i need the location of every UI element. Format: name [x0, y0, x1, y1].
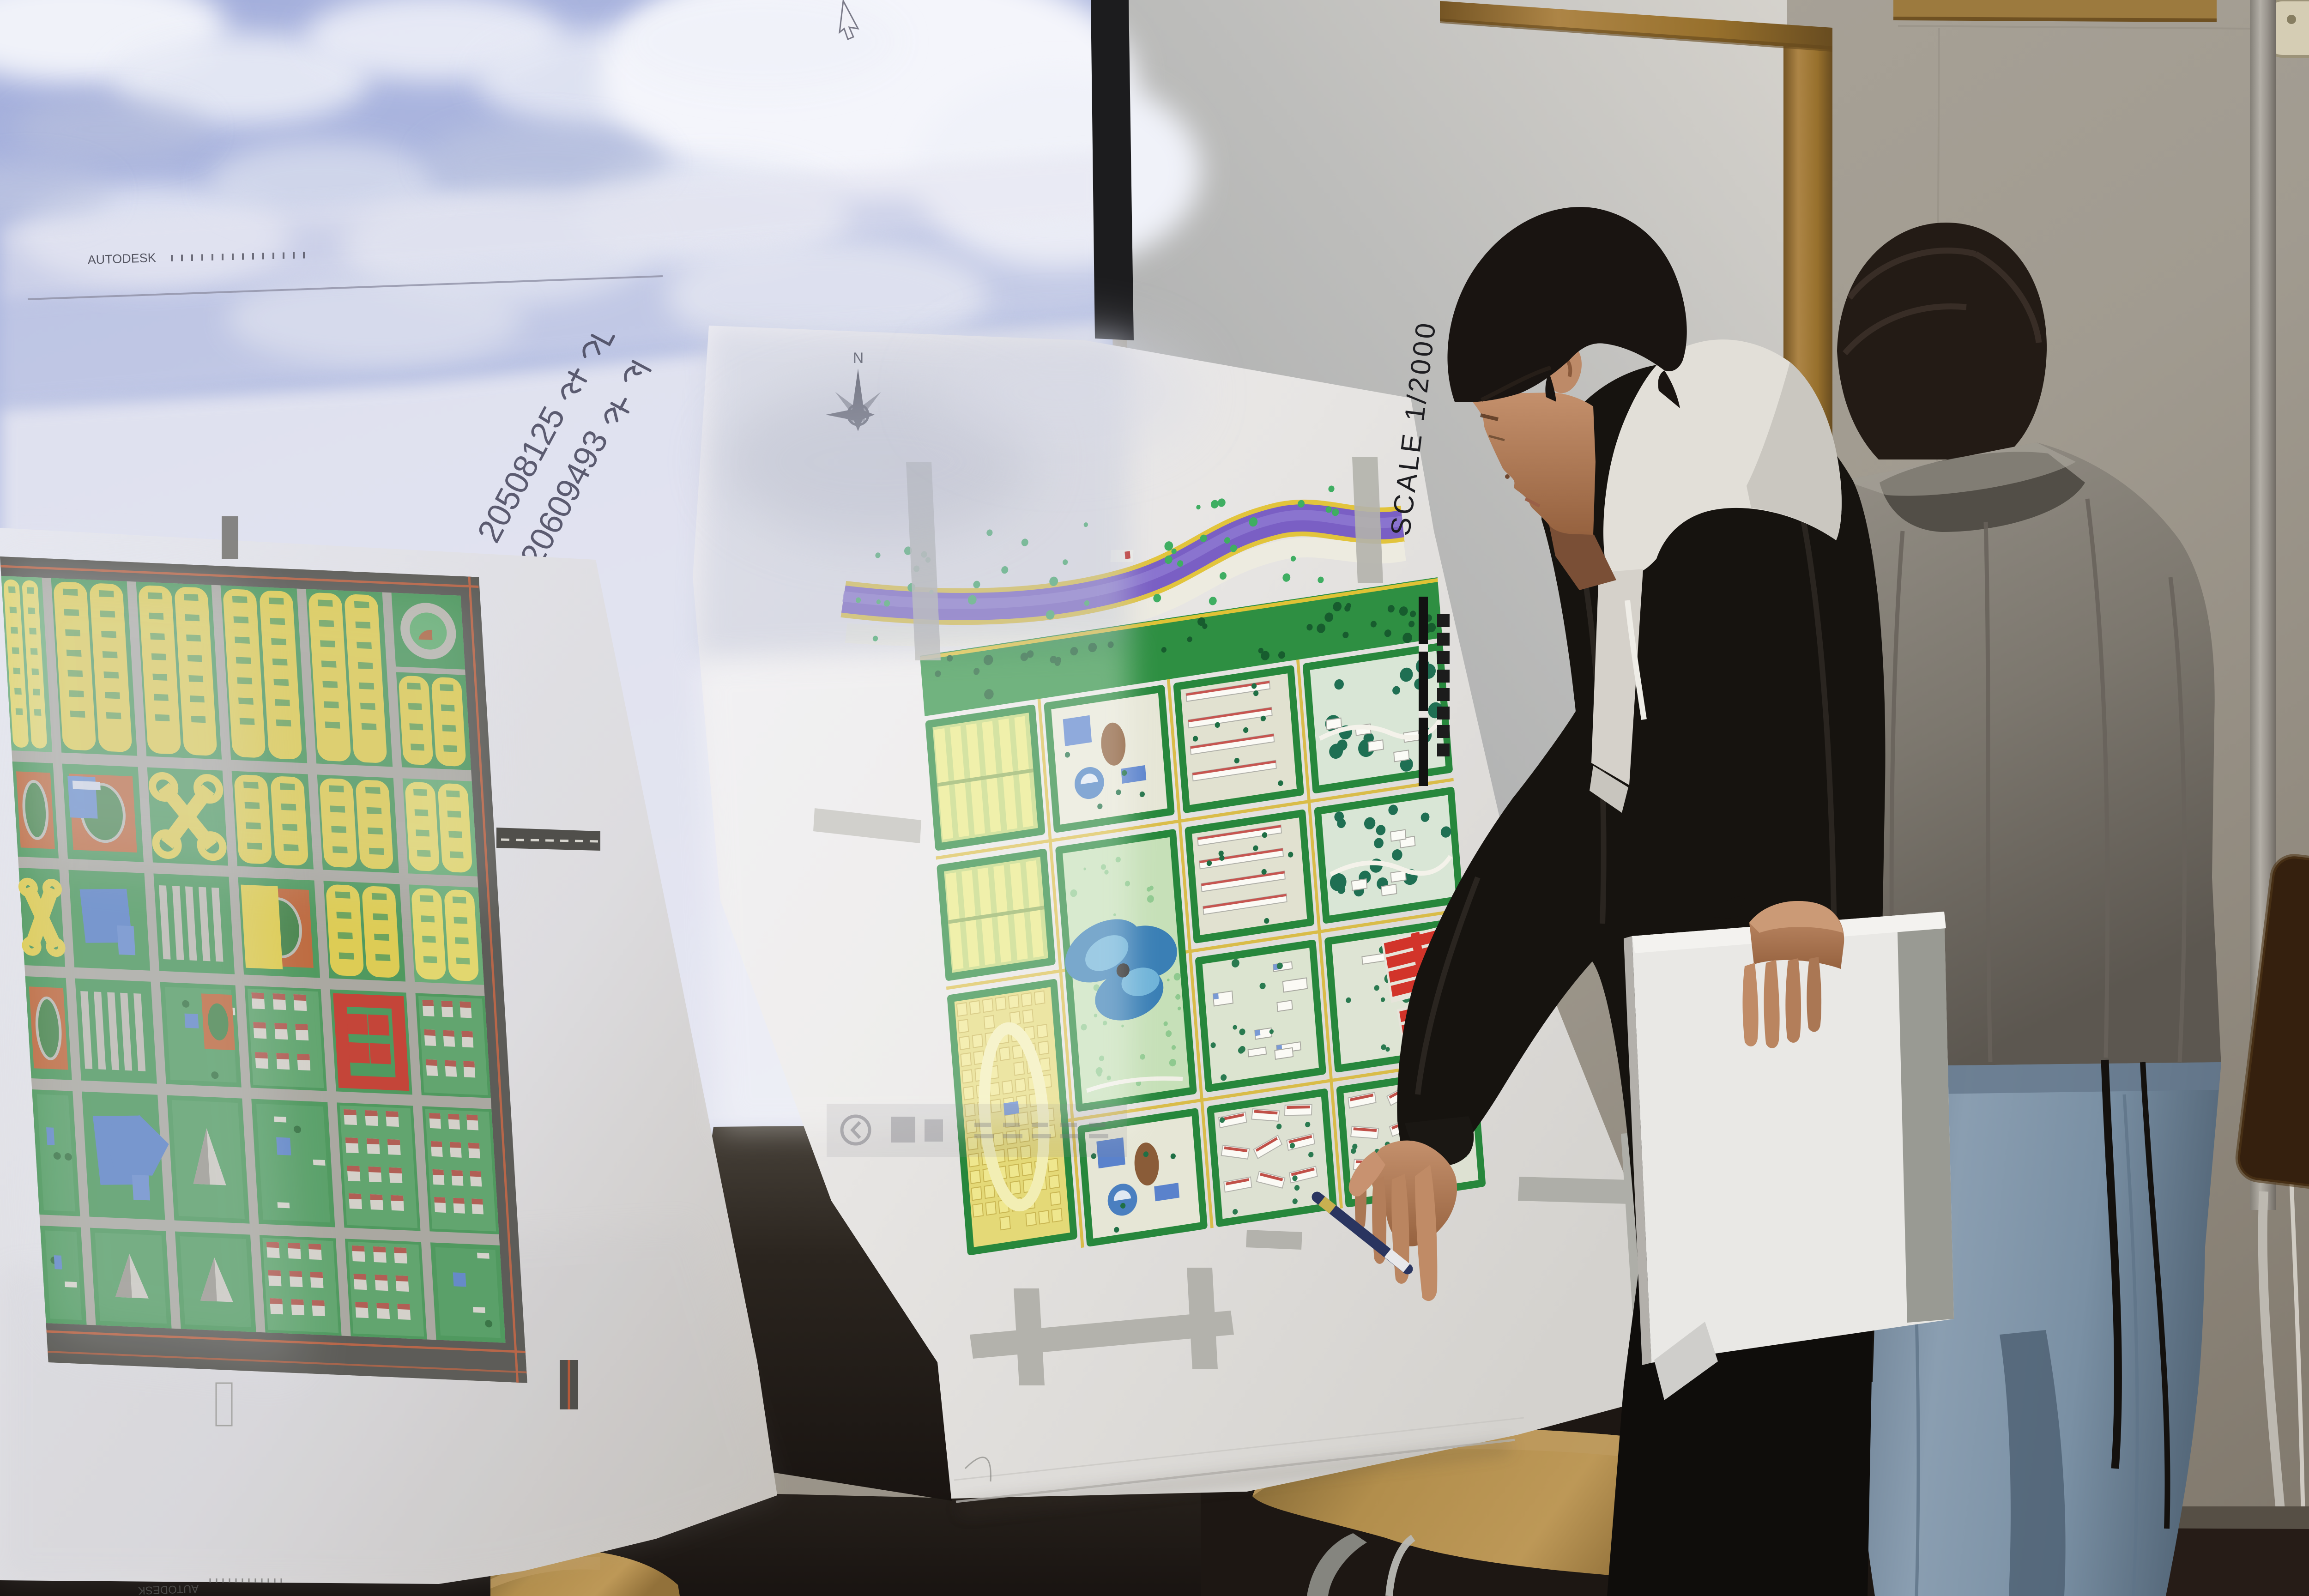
svg-text:AUTODESK: AUTODESK [87, 251, 156, 267]
svg-text:AUTODESK: AUTODESK [138, 1582, 199, 1596]
